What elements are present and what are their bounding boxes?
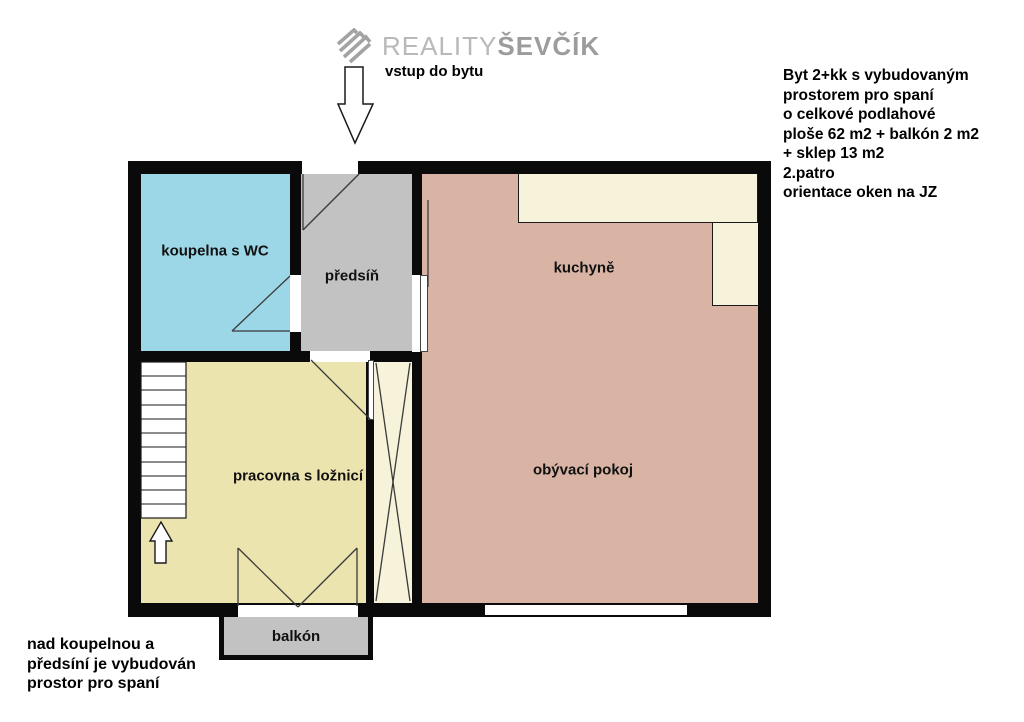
- entrance-door-opening: [302, 161, 358, 174]
- logo-word-light: REALITY: [382, 31, 497, 61]
- living-room-window: [485, 605, 687, 615]
- info-line: orientace oken na JZ: [783, 183, 979, 203]
- info-line: Byt 2+kk s vybudovaným: [783, 66, 979, 86]
- floorplan-page: REALITYŠEVČÍK vstup do bytu Byt 2+kk s v…: [0, 0, 1024, 722]
- logo-wordmark: REALITYŠEVČÍK: [382, 27, 600, 65]
- listing-info: Byt 2+kk s vybudovaným prostorem pro spa…: [783, 66, 979, 203]
- hall-kitchen-door-leaf: [420, 275, 428, 352]
- info-line: o celkové podlahové: [783, 105, 979, 125]
- study-door-leaf: [368, 360, 374, 420]
- mezzanine-note: nad koupelnou a předsíní je vybudován pr…: [27, 635, 196, 694]
- entrance-arrow-icon: [337, 66, 375, 146]
- info-line: 2.patro: [783, 164, 979, 184]
- room-balcony: balkón: [219, 617, 373, 660]
- label-kitchen: kuchyně: [554, 260, 615, 277]
- label-living-room: obývací pokoj: [533, 462, 633, 479]
- entrance-label: vstup do bytu: [385, 63, 483, 80]
- info-line: prostorem pro spaní: [783, 86, 979, 106]
- hall-study-door-opening: [310, 351, 370, 362]
- room-hall: [301, 174, 412, 351]
- kitchen-counter-right: [712, 222, 758, 306]
- floor-plan: koupelna s WC předsíň kuchyně pracovna s…: [128, 161, 771, 617]
- room-bathroom: [141, 174, 290, 351]
- info-line: + sklep 13 m2: [783, 144, 979, 164]
- note-line: prostor pro spaní: [27, 674, 196, 694]
- built-in-wardrobe: [374, 362, 412, 603]
- label-balcony: balkón: [272, 628, 320, 645]
- info-line: ploše 62 m2 + balkón 2 m2: [783, 125, 979, 145]
- label-hall: předsíň: [325, 268, 379, 285]
- note-line: nad koupelnou a: [27, 635, 196, 655]
- logo-word-bold: ŠEVČÍK: [497, 31, 600, 61]
- bathroom-door-opening: [290, 275, 301, 332]
- balcony-door-opening: [238, 605, 358, 617]
- label-study-bedroom: pracovna s ložnicí: [233, 468, 363, 485]
- label-bathroom: koupelna s WC: [161, 243, 269, 260]
- realty-logo: REALITYŠEVČÍK: [334, 27, 600, 65]
- logo-house-icon: [334, 28, 374, 64]
- note-line: předsíní je vybudován: [27, 655, 196, 675]
- kitchen-counter-top: [518, 174, 758, 223]
- room-kitchen-living: [422, 174, 758, 603]
